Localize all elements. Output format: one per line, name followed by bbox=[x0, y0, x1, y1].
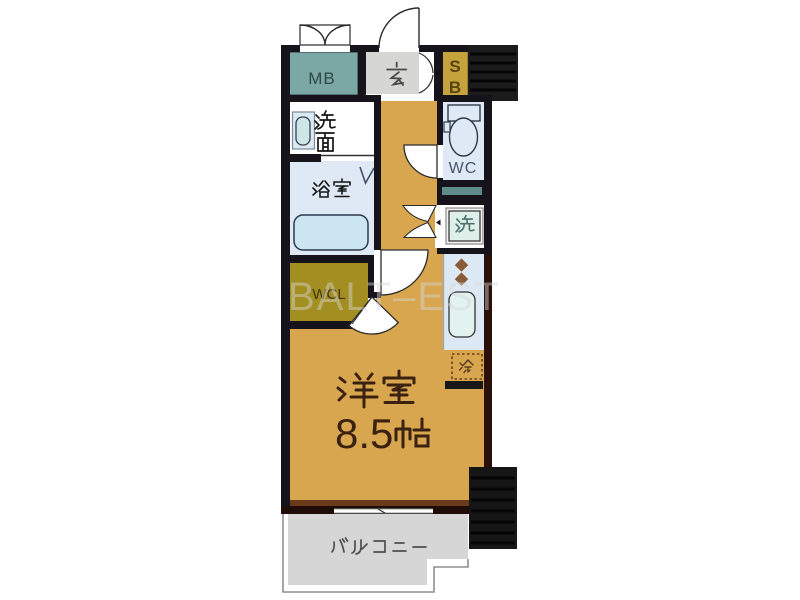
svg-text:B: B bbox=[449, 78, 461, 97]
svg-text:S: S bbox=[449, 57, 460, 76]
svg-text:BALT–EST: BALT–EST bbox=[288, 275, 501, 319]
svg-text:8.5: 8.5 bbox=[335, 410, 393, 457]
svg-text:WC: WC bbox=[449, 160, 478, 177]
svg-text:MB: MB bbox=[308, 69, 336, 88]
